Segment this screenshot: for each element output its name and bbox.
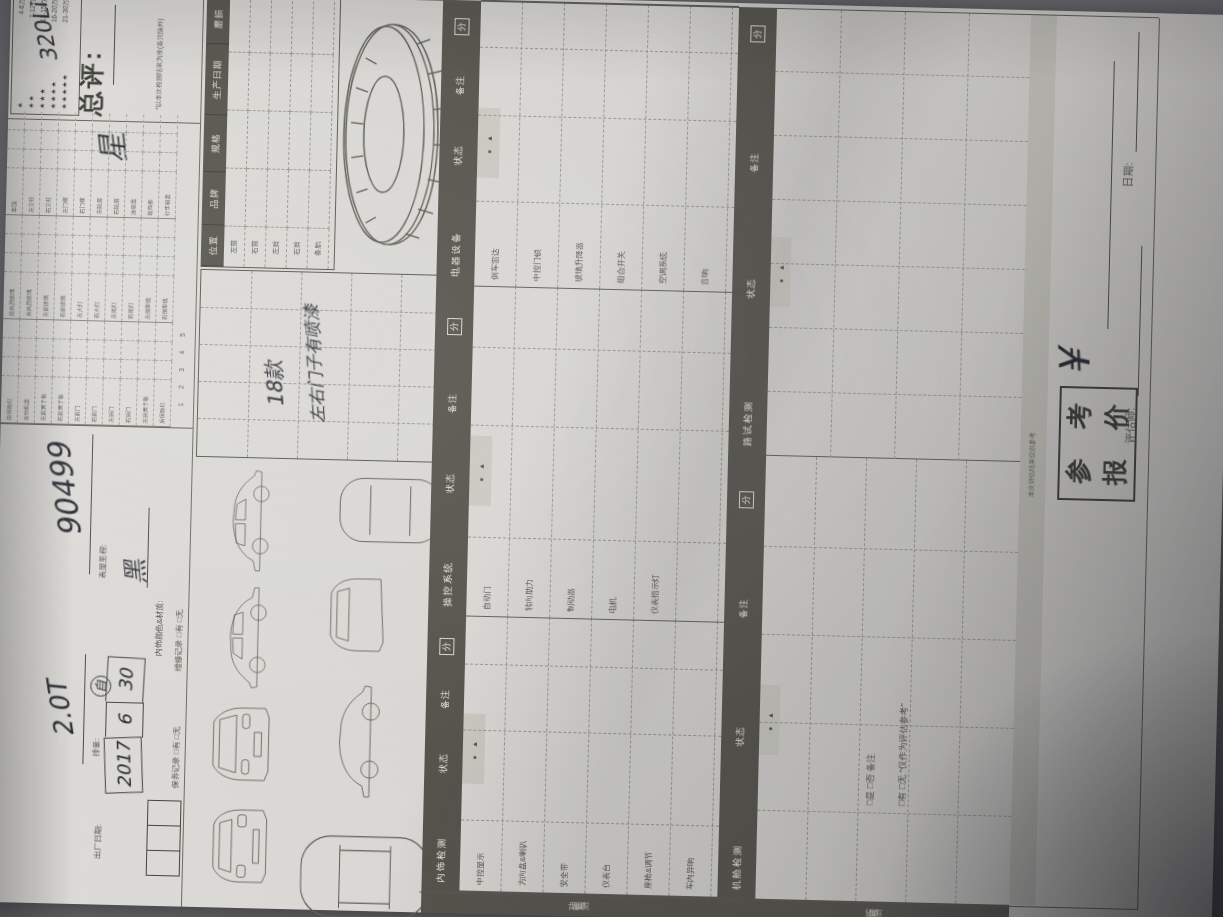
defect-item: 左前翼子板 <box>35 377 53 423</box>
score-header: 分 <box>454 18 469 35</box>
defect-item: 左尾灯 <box>105 275 123 321</box>
check-item-row: 音响 <box>684 6 733 292</box>
defect-item: 右前翼子板 <box>52 377 70 423</box>
section2-grid <box>766 9 1031 462</box>
tire-position: 左前 <box>224 226 246 267</box>
inspection-form-paper: ★ 4-6万 ★★ 7-12万 ★★★ 13-15万 ★★★★ 16-20万 <box>0 0 1223 917</box>
status-header: 状态 <box>452 145 465 165</box>
defect-item: 右大灯 <box>88 274 106 320</box>
defect-item: 右尾灯 <box>122 275 140 321</box>
star-glyphs: ★★★★ <box>49 80 58 109</box>
check-item-label: 电机 <box>607 597 618 613</box>
tire-header-cell: 磨损 <box>207 0 230 45</box>
car-top-view-icon <box>292 819 435 917</box>
check-item-label: 倒车雷达 <box>489 248 501 280</box>
check-item-row: 空调系统 <box>642 5 691 291</box>
section1-block2-title: 操控系统 <box>441 561 455 607</box>
score-header: 分 <box>446 318 461 335</box>
form-bottom-border <box>1137 18 1160 910</box>
defect-item: 右立柱 <box>40 169 58 215</box>
note-handwriting-line1: 18款 <box>259 359 291 409</box>
score-header: 分 <box>750 25 765 42</box>
car-diagram-area <box>185 461 448 913</box>
defect-item: 左大灯 <box>71 274 89 320</box>
mileage-handwriting: 90499 <box>41 440 88 539</box>
car-rear-view-icon <box>193 797 283 895</box>
check-item-label: 中控显示 <box>475 853 487 885</box>
star-glyphs: ★★★★★ <box>60 73 69 110</box>
displacement-line <box>82 654 86 764</box>
remark-header: 备注 <box>438 689 451 709</box>
tire-position: 左后 <box>266 228 288 269</box>
car-side-view-icon <box>196 581 289 693</box>
tire-header-cell: 规格 <box>204 115 227 173</box>
check-item-row: 中控显示 <box>459 615 508 891</box>
check-item-row <box>676 291 726 622</box>
check-item-label: 制动器 <box>565 588 577 612</box>
section1-block3-title: 电器设备 <box>449 231 463 277</box>
status-header: 状态 <box>444 473 457 493</box>
defect-item: 左门槛 <box>57 169 75 215</box>
date-label: 日期: <box>1121 162 1137 187</box>
check-item-label: 座椅&调节 <box>642 852 654 890</box>
assessor-label: 评估师: <box>1123 407 1139 443</box>
stamp-character: 考 <box>1061 388 1099 444</box>
empty-cells <box>146 800 182 877</box>
defect-item: 右倒车镜 <box>156 276 174 322</box>
defect-item: 左轮眉 <box>91 170 109 216</box>
status-header: 状态 <box>437 753 450 773</box>
maintain-record-checkboxes: 保养记录 □有 □无 <box>170 726 183 788</box>
check-item-row: 倒车雷达 <box>474 1 523 287</box>
vehicle-info-block: 排量: 2.0T 自 表显里程: 90499 内饰颜色&材质: 黑 出厂日期: … <box>0 425 193 907</box>
photo-of-inspection-form: ★ 4-6万 ★★ 7-12万 ★★★ 13-15万 ★★★★ 16-20万 <box>0 0 1223 917</box>
check-item-label: 车内异响 <box>684 858 696 890</box>
check-item-label: 空调系统 <box>657 252 669 284</box>
defect-item: 前保险杠 <box>1 376 19 422</box>
displacement-label: 排量: <box>91 738 102 756</box>
interior-label: 内饰颜色&材质: <box>153 600 165 656</box>
remark-header: 备注 <box>446 393 459 413</box>
check-item-label: 方向盘&喇叭 <box>517 840 529 886</box>
date-day-cell: 30 <box>105 656 146 703</box>
reference-price-stamp: 参考报价 <box>1057 386 1138 502</box>
status-header: 状态 <box>734 726 747 746</box>
tire-table: 位置 品牌 规格 生产日期 磨损 左前 右前 <box>201 0 342 270</box>
date-line <box>1136 32 1140 152</box>
displacement-handwriting: 2.0T <box>42 678 80 739</box>
defect-item: 车顶 <box>6 168 24 214</box>
tire-header-cell: 品牌 <box>203 172 226 226</box>
repair-record-checkboxes: 维修记录 □有 □无 <box>173 609 186 671</box>
defect-item: 右前玻璃 <box>54 273 72 319</box>
legend-range: 4-6万 <box>18 0 27 14</box>
sidebar-label-top: 功能性检测 <box>561 899 576 911</box>
star-glyphs: ★★★ <box>38 87 47 109</box>
defect-item: 后保险杠 <box>154 380 172 426</box>
check-item-row: 中控门锁 <box>516 2 565 288</box>
defect-item: 左前玻璃 <box>37 273 55 319</box>
factory-date-cells: 2017 6 30 <box>104 657 145 794</box>
tire-table-body: 左前 右前 左后 右后 <box>224 0 336 269</box>
car-rear-view-icon <box>313 566 399 664</box>
check-item-row: 组合开关 <box>600 4 649 290</box>
price-line <box>1107 61 1115 329</box>
confirm-checkbox-line1: □是 □否 备注 <box>864 753 878 805</box>
exterior-defect-table: 前保险杠 前风挡玻璃 车顶 发动机盖 后风挡玻璃 左立柱 左前翼子板 左前玻璃 … <box>1 118 200 429</box>
tire-header-cell: 生产日期 <box>205 44 229 116</box>
defect-item: 行李箱盖 <box>159 172 177 218</box>
mileage-line <box>89 434 93 574</box>
check-item-label: 仪表指示灯 <box>649 574 661 614</box>
defect-item: 左前门 <box>69 378 87 424</box>
defect-item: 发动机盖 <box>18 376 36 422</box>
check-item-row: 仪表台 <box>585 619 634 895</box>
car-side-view-icon <box>310 680 397 804</box>
section2-block2-title: 路试检测 <box>741 400 755 446</box>
check-item-row: 车内异响 <box>669 621 718 897</box>
car-side-view-icon <box>199 465 292 577</box>
confirm-checkbox-line2: □有 □无 “仅作为评估参考” <box>896 703 912 806</box>
defect-item: 右轮眉 <box>108 171 126 217</box>
section1-block2-body: 自动门转向助力制动器电机仪表指示灯 <box>466 286 732 623</box>
note-handwriting-line2: 左右门子有喷漆 <box>300 303 330 423</box>
defect-item: 右后门 <box>120 379 138 425</box>
defect-item: 左后翼子板 <box>137 379 155 425</box>
check-item-label: 转向助力 <box>523 579 535 611</box>
tire-position: 备胎 <box>308 229 330 270</box>
defect-item: 油箱盖 <box>125 171 143 217</box>
section1-block1-body: 中控显示方向盘&喇叭安全带仪表台座椅&调节车内异响 <box>459 615 724 897</box>
remark-header: 备注 <box>748 152 761 172</box>
overall-score-line <box>113 5 116 85</box>
check-item-label: 音响 <box>699 269 710 285</box>
defect-item: 左立柱 <box>23 169 41 215</box>
overall-note: *以本次检测结果为准(备注除外) <box>154 18 165 110</box>
remarks-box-top: 18款 左右门子有喷漆 <box>196 269 455 463</box>
assessor-line <box>1138 246 1143 396</box>
defect-item: 右前门 <box>86 378 104 424</box>
check-item-label: 安全带 <box>559 863 571 887</box>
overall-score-label: 总评: <box>74 48 109 116</box>
stamp-character: 报 <box>1096 444 1134 500</box>
check-item-label: 自动门 <box>481 586 493 610</box>
section1-block1-title: 内饰检测 <box>434 837 448 883</box>
currency-handwriting: ¥ <box>1050 348 1100 377</box>
score-header: 分 <box>439 638 454 655</box>
check-item-label: 玻璃升降器 <box>573 242 585 282</box>
star-glyphs: ★★ <box>27 94 35 109</box>
score-header: 分 <box>738 491 753 508</box>
remark-header: 备注 <box>453 75 466 95</box>
check-item-label: 中控门锁 <box>531 249 543 281</box>
star-glyphs: ★ <box>16 101 24 108</box>
section2-block1-title: 机舱检测 <box>730 844 744 890</box>
defect-item: 装饰条 <box>142 171 160 217</box>
mileage-label: 表显里程: <box>97 544 109 578</box>
sidebar-label-bottom: 综合检测 <box>857 906 869 917</box>
section1-block3-body: 倒车雷达中控门锁玻璃升降器组合开关空调系统音响 <box>474 0 739 293</box>
factory-date-label: 出厂日期: <box>92 824 104 858</box>
defect-item: 右门槛 <box>74 170 92 216</box>
tire-position: 右前 <box>245 227 267 268</box>
date-month-cell: 6 <box>105 702 144 738</box>
check-item-row: 方向盘&喇叭 <box>501 617 550 893</box>
tire-header-cell: 位置 <box>202 225 225 267</box>
defect-item: 左后门 <box>103 379 121 425</box>
check-item-label: 组合开关 <box>615 251 627 283</box>
status-header: 状态 <box>744 278 757 298</box>
defect-item: 左倒车镜 <box>139 275 157 321</box>
remark-header: 备注 <box>737 598 750 618</box>
band-note: 本次评估结果仅供参考 <box>1027 432 1038 497</box>
stamp-character: 参 <box>1059 443 1097 499</box>
check-item-label: 仪表台 <box>601 864 613 888</box>
section2-remarks-box: □是 □否 备注 □有 □无 “仅作为评估参考” <box>755 455 1020 905</box>
check-item-row: 安全带 <box>543 618 592 894</box>
tire-position: 右后 <box>287 228 309 269</box>
defect-item: 前风挡玻璃 <box>3 272 21 318</box>
legend-range: 21-30万 <box>61 0 71 23</box>
defect-item: 后风挡玻璃 <box>20 273 38 319</box>
check-item-row: 玻璃升降器 <box>558 3 607 289</box>
check-item-row: 座椅&调节 <box>627 620 676 896</box>
date-year-cell: 2017 <box>104 737 144 794</box>
car-front-view-icon <box>196 695 286 793</box>
